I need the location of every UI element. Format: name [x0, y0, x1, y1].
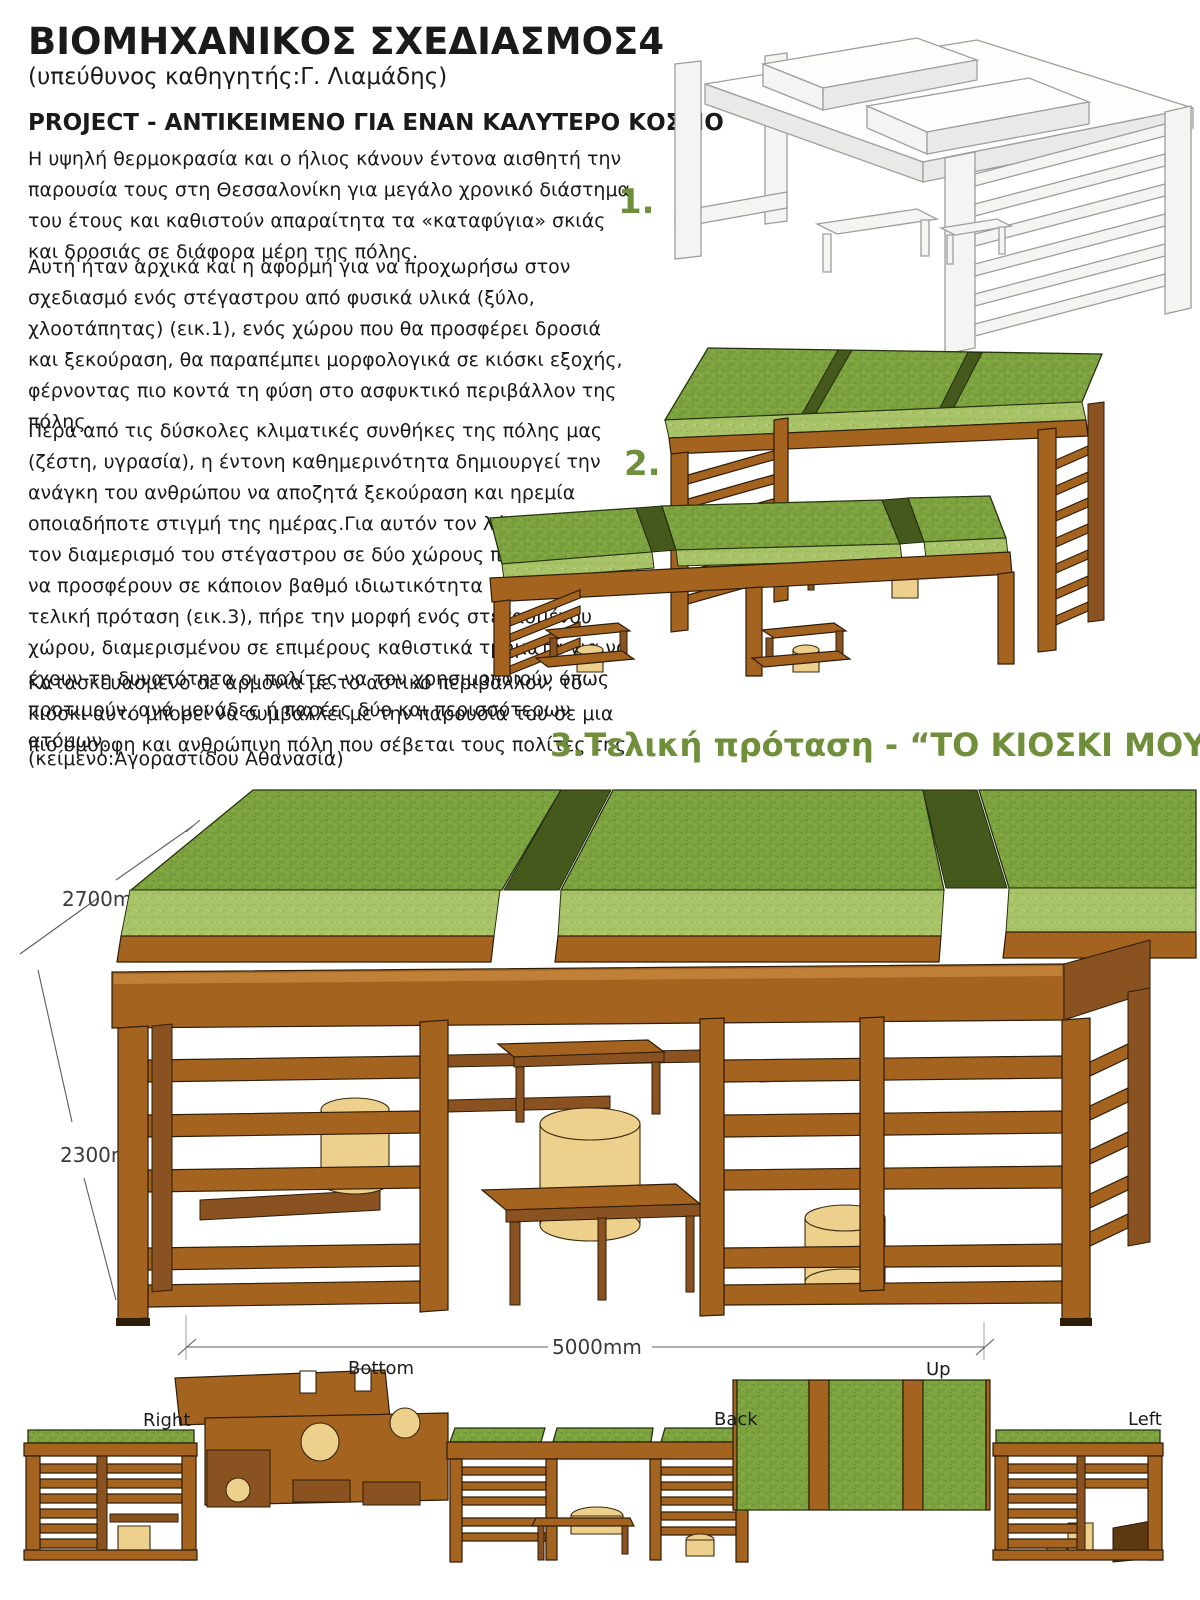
post-right-inner	[860, 1017, 884, 1291]
fig2-lower-kiosk	[490, 496, 1014, 676]
roof-slab-mid-top	[561, 790, 944, 890]
view-up	[733, 1380, 990, 1510]
page-title: ΒΙΟΜΗΧΑΝΙΚΟΣ ΣΧΕΔΙΑΣΜΟΣ4	[28, 20, 664, 63]
dimension-width: 5000mm	[178, 1315, 994, 1360]
text-credit: (κείμενο:Αγοραστίδου Αθανασία)	[28, 748, 344, 770]
fig2-bay2-furniture	[752, 623, 850, 672]
paragraph-climate: Η υψηλή θερμοκρασία και ο ήλιος κάνουν έ…	[28, 144, 636, 268]
roof-slab-right-front	[1006, 888, 1196, 932]
right-bay-slats	[724, 1056, 1062, 1305]
project-heading: PROJECT - ΑΝΤΙΚΕΙΜΕΝΟ ΓΙΑ ΕΝΑΝ ΚΑΛΥΤΕΡΟ …	[28, 110, 724, 136]
figure-2-render	[450, 320, 1200, 680]
pouf-center	[540, 1108, 640, 1241]
post-left-front	[118, 1026, 148, 1320]
sketch-far-post	[1165, 106, 1191, 314]
view-label-left: Left	[1128, 1409, 1162, 1430]
table-lower	[482, 1184, 700, 1305]
view-label-back: Back	[714, 1409, 758, 1430]
fig2-right-wall	[1038, 402, 1104, 652]
figure-3-caption: 3.Τελική πρόταση - “ΤΟ ΚΙΟΣΚΙ ΜΟΥ”	[550, 726, 1200, 764]
post-right-front	[1062, 1018, 1090, 1320]
post-left-inner	[420, 1020, 448, 1312]
view-back	[447, 1428, 748, 1562]
figure-1-sketch	[645, 16, 1200, 364]
grass-roof	[117, 790, 1196, 962]
post-back-right	[1128, 988, 1150, 1246]
view-label-up: Up	[926, 1359, 951, 1380]
roof-slab-mid-front	[558, 890, 944, 936]
roof-edge-board	[117, 936, 494, 962]
fig2-bay1-furniture	[536, 623, 634, 672]
right-side-wall	[1090, 1044, 1128, 1246]
left-bay-slats	[148, 1056, 420, 1307]
view-label-bottom: Bottom	[348, 1358, 414, 1379]
roof-slab-right-top	[979, 790, 1196, 888]
post-center-right	[700, 1018, 724, 1316]
view-left	[993, 1430, 1163, 1562]
dimension-width-label: 5000mm	[552, 1335, 642, 1359]
view-label-right: Right	[143, 1410, 190, 1431]
roof-slab-left-top	[131, 790, 561, 890]
view-right	[24, 1430, 197, 1560]
main-render: 2700mm 2300mm 5000mm	[0, 770, 1200, 1600]
roof-edge-board	[555, 936, 941, 962]
roof-slab-left-front	[121, 890, 500, 936]
fig2-right-post	[998, 572, 1014, 664]
sketch-front-post	[675, 61, 701, 259]
page-subtitle: (υπεύθυνος καθηγητής:Γ. Λιαμάδης)	[28, 64, 447, 90]
sketch-pergola	[675, 38, 1193, 354]
view-bottom	[175, 1369, 448, 1507]
